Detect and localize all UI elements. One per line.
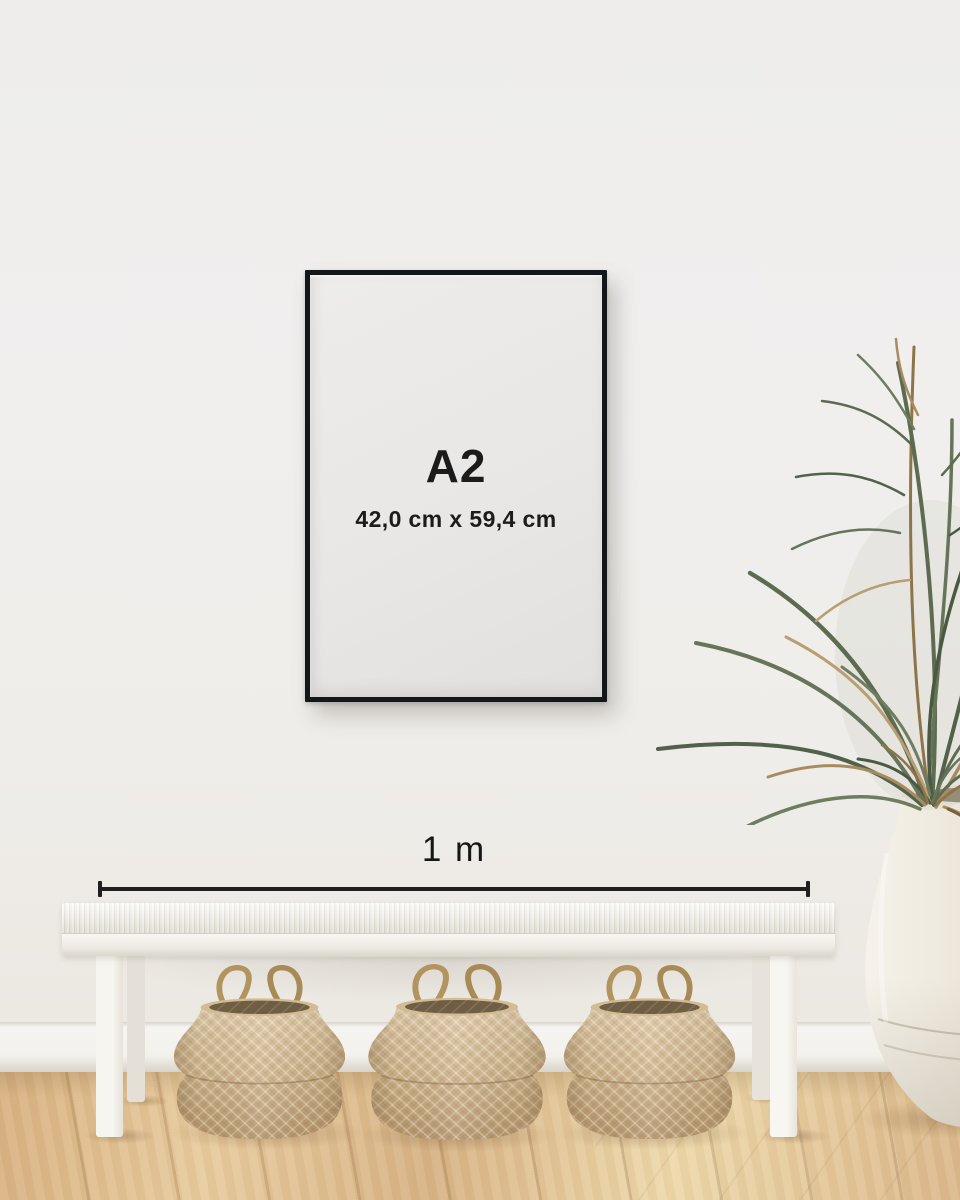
bench-woven-top: [62, 903, 835, 933]
size-label: A2: [426, 443, 487, 489]
bench-leg-left-back: [127, 953, 145, 1102]
seagrass-basket-left: [163, 961, 356, 1139]
measurement-scale: 1 m: [98, 830, 810, 900]
bench-leg-right-back: [752, 953, 771, 1100]
measure-tick-left: [98, 881, 102, 897]
floor-vase: [856, 783, 960, 1131]
bench-front-edge: [62, 933, 835, 956]
bench-seat: [62, 903, 835, 956]
bench-leg-left-front: [96, 953, 123, 1137]
poster: A2 42,0 cm x 59,4 cm: [310, 275, 602, 697]
bench-leg-right-front: [770, 953, 797, 1137]
measure-label: 1 m: [98, 830, 810, 870]
palm-plant: [600, 325, 960, 825]
size-guide-scene: A2 42,0 cm x 59,4 cm 1 m: [0, 0, 960, 1200]
measure-line: [98, 887, 810, 891]
seagrass-basket-right: [553, 961, 746, 1139]
dimensions-label: 42,0 cm x 59,4 cm: [355, 506, 556, 533]
seagrass-basket-middle: [357, 960, 557, 1140]
measure-tick-right: [806, 881, 810, 897]
poster-frame: A2 42,0 cm x 59,4 cm: [305, 270, 607, 702]
